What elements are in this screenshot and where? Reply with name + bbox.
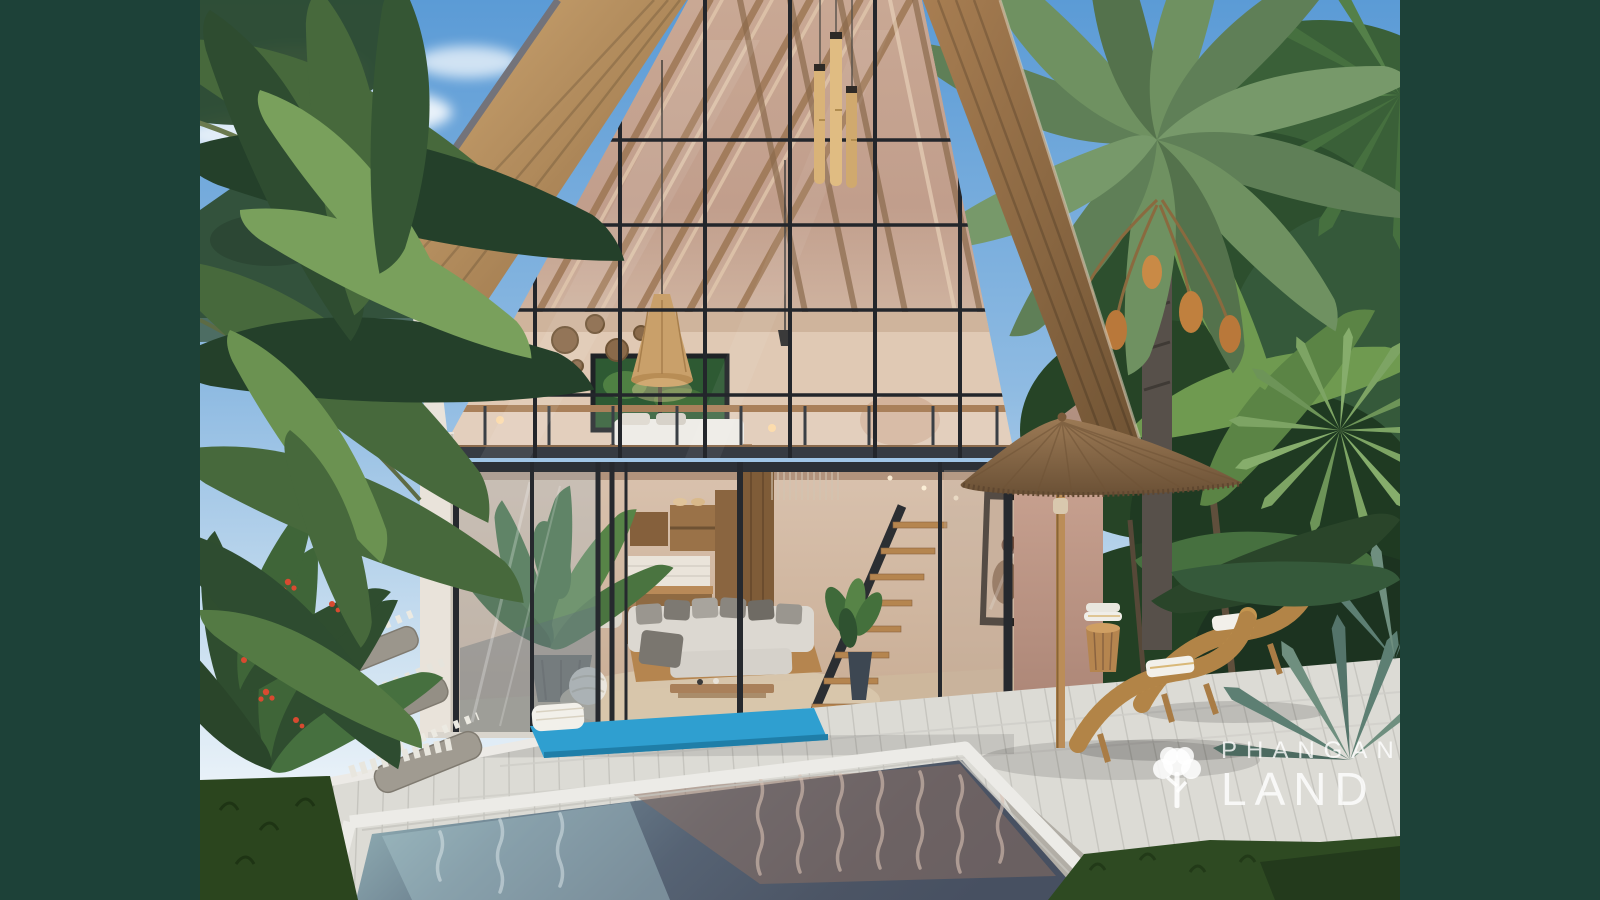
left-letterbox-bar <box>0 0 200 900</box>
towel-barrel-table <box>1084 603 1122 672</box>
screenshot: PHANGAN LAND <box>0 0 1600 900</box>
rolled-towel <box>531 702 585 732</box>
living-room-sofa <box>628 597 822 682</box>
watermark-line2: LAND <box>1221 765 1400 813</box>
watermark: PHANGAN LAND <box>1145 738 1400 814</box>
right-letterbox-bar <box>1400 0 1600 900</box>
watermark-line1: PHANGAN <box>1221 738 1400 764</box>
tree-icon <box>1145 742 1209 810</box>
villa-photo: PHANGAN LAND <box>200 0 1400 900</box>
